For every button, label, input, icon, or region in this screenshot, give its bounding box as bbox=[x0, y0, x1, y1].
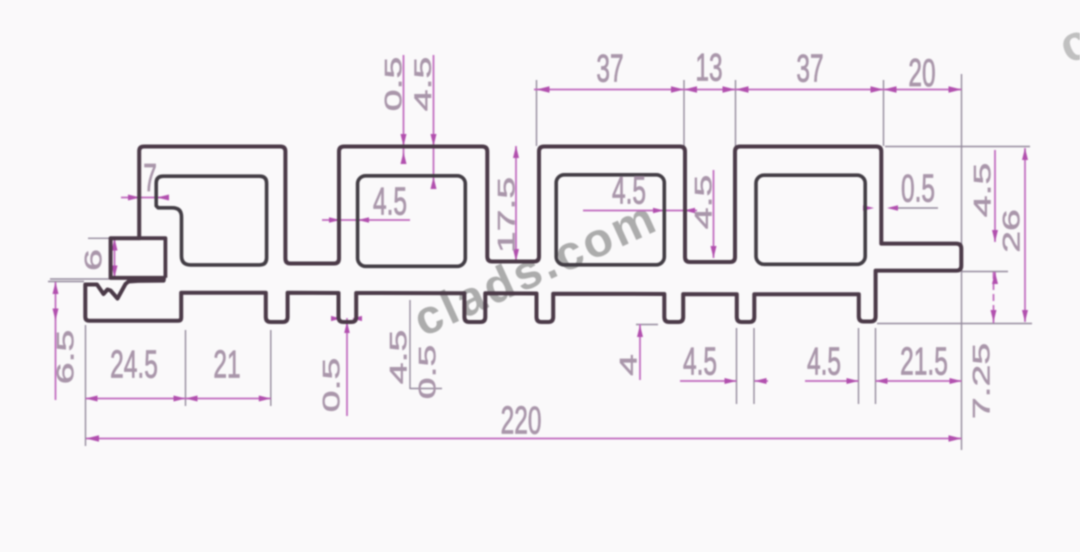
svg-text:21: 21 bbox=[213, 341, 240, 385]
svg-text:21.5: 21.5 bbox=[900, 338, 948, 382]
svg-text:24.5: 24.5 bbox=[110, 341, 158, 385]
svg-text:0.5: 0.5 bbox=[413, 345, 441, 399]
svg-text:4.5: 4.5 bbox=[683, 338, 717, 382]
svg-text:220: 220 bbox=[501, 397, 542, 441]
svg-text:4.5: 4.5 bbox=[612, 167, 646, 211]
svg-text:7: 7 bbox=[143, 155, 157, 199]
svg-text:0.5: 0.5 bbox=[379, 57, 407, 111]
svg-text:6.5: 6.5 bbox=[51, 330, 79, 384]
svg-text:4.5: 4.5 bbox=[384, 330, 412, 384]
svg-text:37: 37 bbox=[796, 45, 823, 89]
svg-text:4.5: 4.5 bbox=[807, 338, 841, 382]
svg-text:7.25: 7.25 bbox=[967, 343, 995, 419]
svg-text:4.5: 4.5 bbox=[968, 163, 996, 217]
svg-text:4.5: 4.5 bbox=[689, 175, 717, 229]
svg-text:4.5: 4.5 bbox=[408, 57, 436, 111]
svg-text:26: 26 bbox=[997, 209, 1025, 253]
svg-text:4: 4 bbox=[614, 354, 642, 376]
svg-text:20: 20 bbox=[908, 50, 935, 94]
svg-text:37: 37 bbox=[596, 45, 623, 89]
svg-text:4.5: 4.5 bbox=[373, 178, 407, 222]
svg-text:13: 13 bbox=[695, 44, 722, 88]
svg-text:0.5: 0.5 bbox=[317, 358, 345, 412]
svg-text:0.5: 0.5 bbox=[901, 165, 935, 209]
svg-text:6: 6 bbox=[79, 249, 107, 271]
svg-text:17.5: 17.5 bbox=[492, 177, 520, 253]
